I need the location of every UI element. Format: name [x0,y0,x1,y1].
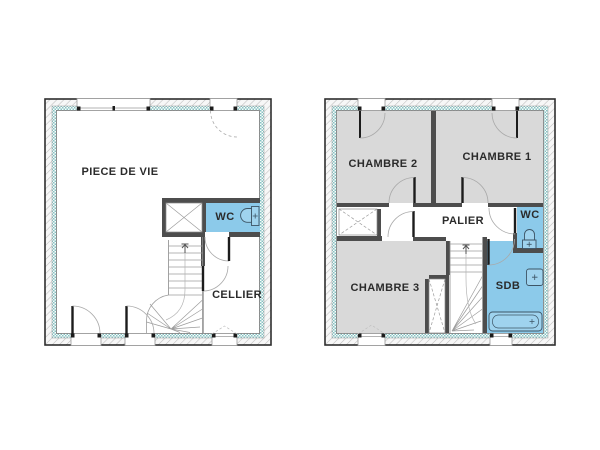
room-label-piece-de-vie: PIECE DE VIE [82,166,159,178]
sink-icon [527,269,544,286]
closet-icon [166,203,202,232]
room-label-chambre-2: CHAMBRE 2 [349,158,418,170]
room-label-chambre-1: CHAMBRE 1 [463,151,532,163]
ground-floor-plan [44,98,272,346]
floor-plans-canvas: PIECE DE VIE WC CELLIER CHAMBRE 2 CHAMBR… [0,0,600,450]
room-label-wc-ground: WC [215,211,234,223]
window-sdb [490,334,512,346]
toilet-icon [523,230,537,249]
room-label-sdb: SDB [496,280,520,292]
room-chambre2-fill [337,111,432,203]
room-label-palier: PALIER [442,215,484,227]
window-top [77,99,150,111]
room-label-wc-first: WC [520,209,539,221]
room-label-chambre-3: CHAMBRE 3 [351,282,420,294]
first-floor-plan [324,98,556,346]
room-label-cellier: CELLIER [212,289,262,301]
bathtub-icon [489,312,542,331]
